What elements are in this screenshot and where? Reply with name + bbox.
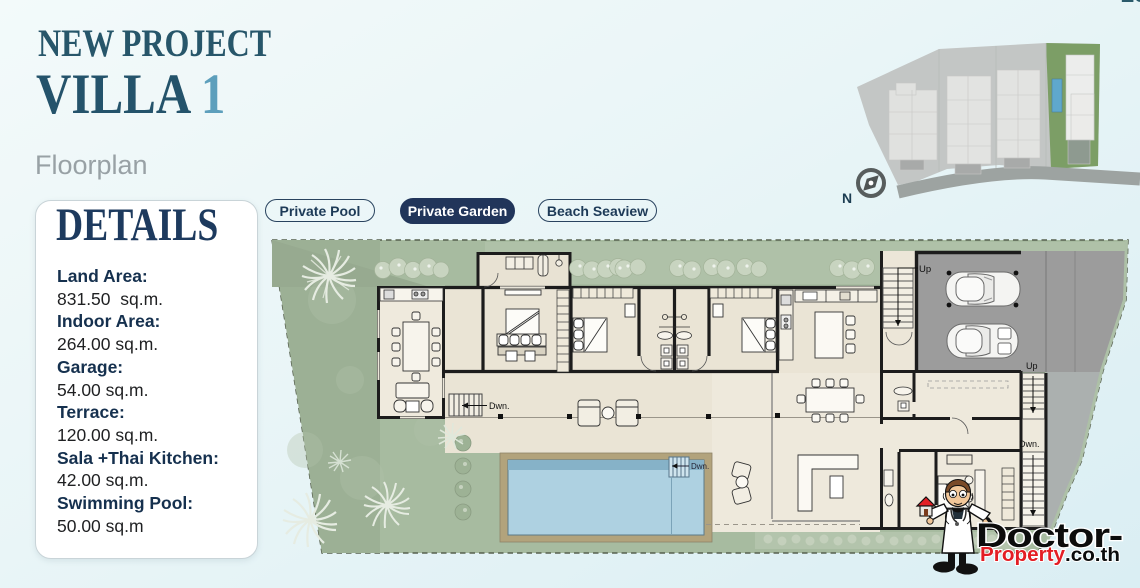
svg-text:Dwn.: Dwn. xyxy=(691,462,709,471)
svg-text:Up: Up xyxy=(1026,361,1038,371)
svg-text:Property: Property xyxy=(980,544,1066,566)
svg-text:Dwn.: Dwn. xyxy=(489,401,510,411)
svg-text:.co.th: .co.th xyxy=(1065,545,1120,566)
svg-text:Dwn.: Dwn. xyxy=(1019,439,1040,449)
svg-text:Up: Up xyxy=(919,264,931,275)
svg-text:N: N xyxy=(842,190,852,206)
